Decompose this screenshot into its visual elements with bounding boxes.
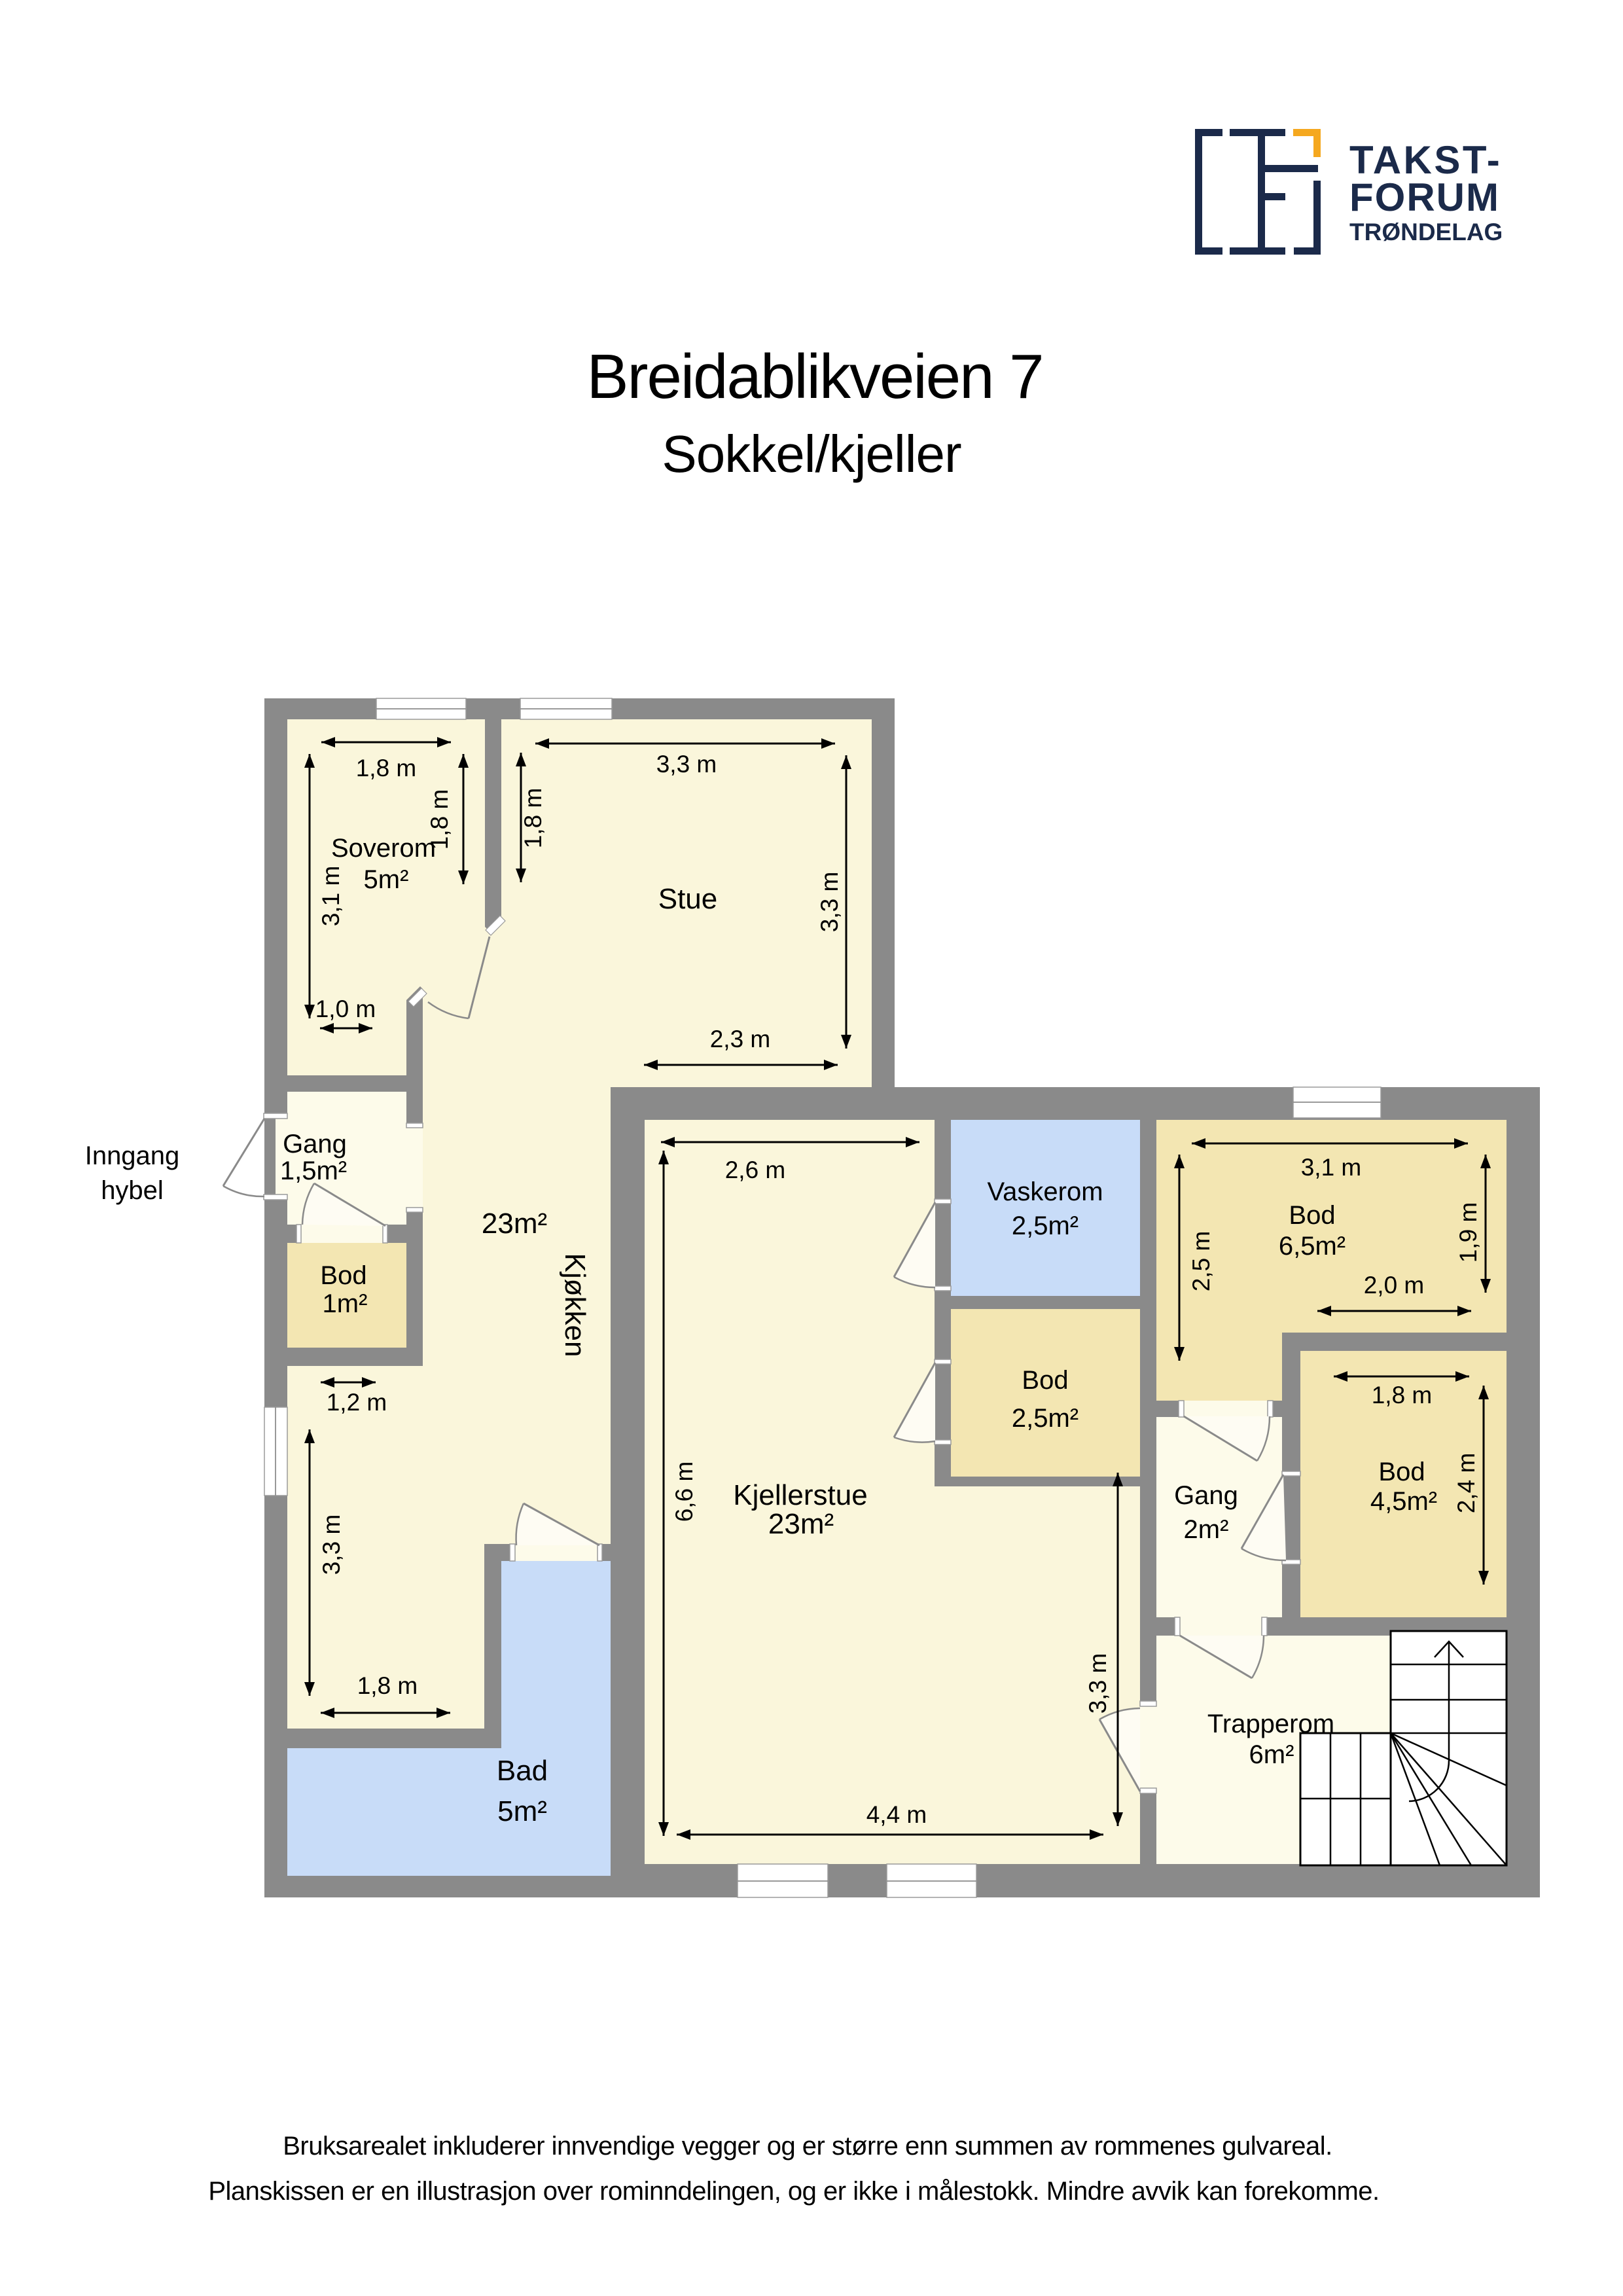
svg-text:3,3 m: 3,3 m <box>816 872 843 933</box>
svg-text:3,1 m: 3,1 m <box>317 866 344 927</box>
svg-text:5m²: 5m² <box>497 1795 547 1827</box>
svg-text:3,3 m: 3,3 m <box>656 751 717 778</box>
svg-text:3,3 m: 3,3 m <box>1084 1653 1111 1714</box>
svg-text:TRØNDELAG: TRØNDELAG <box>1349 219 1503 245</box>
svg-text:1,8 m: 1,8 m <box>520 788 546 849</box>
svg-text:1,8 m: 1,8 m <box>1372 1382 1433 1408</box>
svg-text:2,3 m: 2,3 m <box>710 1026 771 1052</box>
svg-text:1,8 m: 1,8 m <box>357 1672 418 1699</box>
svg-text:5m²: 5m² <box>364 865 409 894</box>
svg-text:2,5 m: 2,5 m <box>1188 1231 1215 1292</box>
svg-text:1,5m²: 1,5m² <box>280 1157 347 1185</box>
svg-text:6m²: 6m² <box>1249 1740 1294 1769</box>
svg-text:3,3 m: 3,3 m <box>318 1515 345 1575</box>
svg-text:23m²: 23m² <box>482 1208 547 1240</box>
svg-text:4,5m²: 4,5m² <box>1370 1487 1437 1516</box>
svg-text:6,5m²: 6,5m² <box>1279 1232 1346 1261</box>
svg-text:1,8 m: 1,8 m <box>356 755 417 781</box>
svg-text:Inngang: Inngang <box>85 1141 180 1170</box>
svg-text:Kjellerstue: Kjellerstue <box>733 1479 867 1511</box>
svg-text:3,1 m: 3,1 m <box>1301 1154 1362 1181</box>
svg-text:Gang: Gang <box>283 1130 347 1158</box>
svg-text:6,6 m: 6,6 m <box>671 1462 698 1522</box>
svg-text:4,4 m: 4,4 m <box>866 1801 927 1828</box>
svg-text:Bod: Bod <box>320 1261 366 1290</box>
svg-text:2m²: 2m² <box>1184 1515 1229 1544</box>
svg-text:2,6 m: 2,6 m <box>725 1157 786 1183</box>
svg-text:1,2 m: 1,2 m <box>327 1389 387 1416</box>
svg-text:23m²: 23m² <box>768 1508 834 1540</box>
svg-text:Kjøkken: Kjøkken <box>559 1253 591 1357</box>
svg-text:Bad: Bad <box>497 1755 548 1787</box>
svg-text:Stue: Stue <box>658 883 718 915</box>
svg-text:1m²: 1m² <box>323 1289 368 1318</box>
svg-text:Vaskerom: Vaskerom <box>987 1177 1103 1206</box>
svg-text:Bruksarealet inkluderer innven: Bruksarealet inkluderer innvendige vegge… <box>283 2132 1332 2161</box>
svg-text:1,9 m: 1,9 m <box>1455 1202 1482 1263</box>
svg-text:2,4 m: 2,4 m <box>1453 1453 1480 1514</box>
svg-text:Trapperom: Trapperom <box>1207 1710 1334 1738</box>
svg-text:1,0 m: 1,0 m <box>315 996 376 1022</box>
svg-text:Bod: Bod <box>1289 1201 1335 1230</box>
svg-text:2,0 m: 2,0 m <box>1364 1272 1425 1299</box>
svg-text:Sokkel/kjeller: Sokkel/kjeller <box>662 425 961 483</box>
svg-text:hybel: hybel <box>101 1176 164 1205</box>
svg-text:Bod: Bod <box>1378 1458 1425 1486</box>
svg-text:Gang: Gang <box>1174 1481 1238 1510</box>
svg-text:2,5m²: 2,5m² <box>1012 1404 1079 1433</box>
svg-text:Planskissen er en illustrasjon: Planskissen er en illustrasjon over romi… <box>208 2177 1379 2206</box>
svg-text:Breidablikveien 7: Breidablikveien 7 <box>586 342 1043 412</box>
svg-text:2,5m²: 2,5m² <box>1012 1211 1079 1240</box>
svg-text:Bod: Bod <box>1022 1366 1068 1395</box>
svg-text:Soverom: Soverom <box>331 834 436 863</box>
svg-text:FORUM: FORUM <box>1349 175 1500 219</box>
